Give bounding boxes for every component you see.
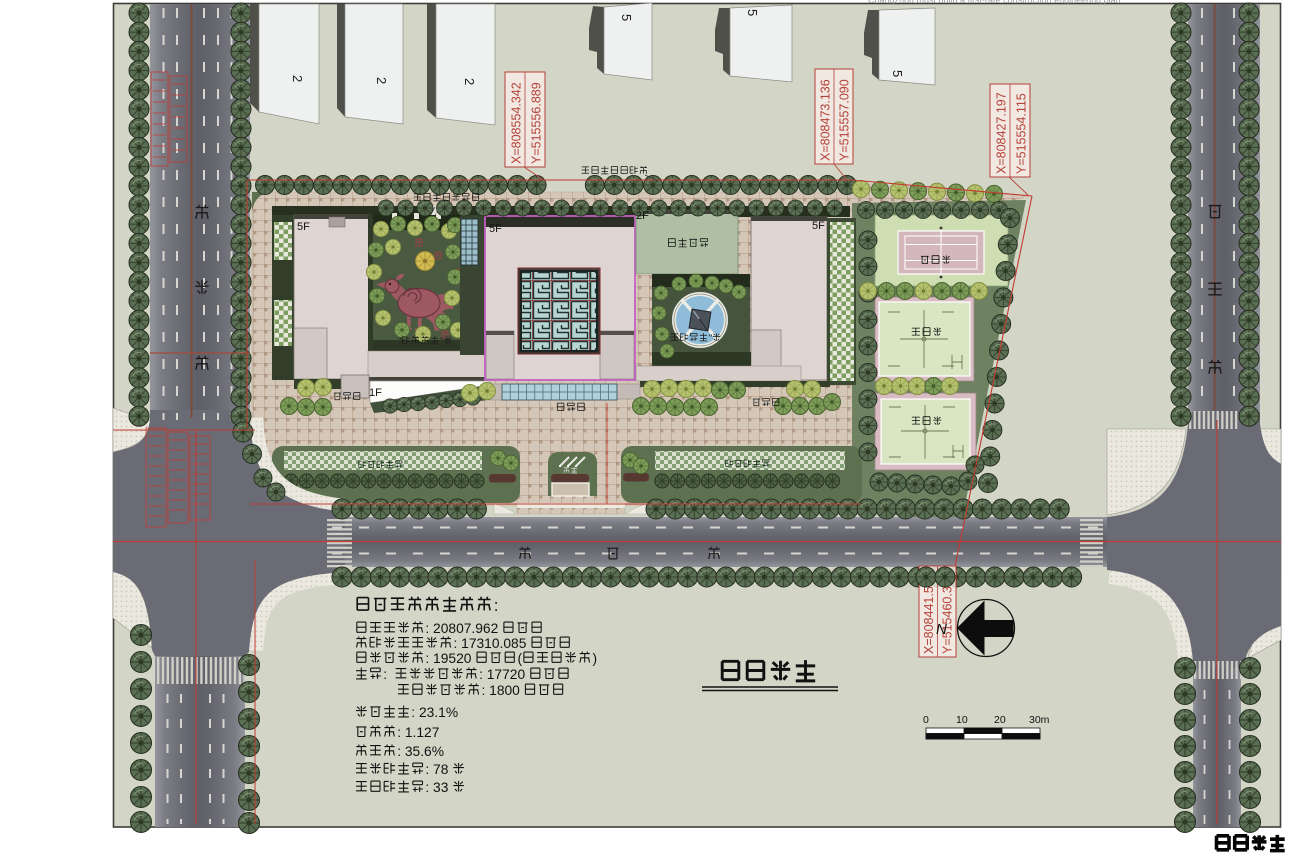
svg-text:X=808441.5: X=808441.5 [922, 586, 936, 654]
svg-text:: 19520: : 19520 [425, 651, 471, 666]
svg-text:5F: 5F [297, 221, 310, 233]
svg-text:: 17310.085: : 17310.085 [454, 636, 527, 651]
svg-text:(: ( [518, 651, 523, 666]
svg-text:Y=515557.090: Y=515557.090 [838, 79, 852, 161]
svg-text:2: 2 [462, 78, 477, 85]
svg-text:5: 5 [890, 70, 905, 77]
svg-text:: 33: : 33 [425, 780, 448, 795]
svg-text:0: 0 [923, 714, 929, 726]
svg-text:2: 2 [374, 77, 389, 84]
svg-text:Y=515556.889: Y=515556.889 [530, 82, 544, 164]
svg-text:: 78: : 78 [425, 762, 448, 777]
svg-text:5: 5 [745, 9, 760, 16]
svg-text:5: 5 [619, 14, 634, 21]
svg-text:": " [709, 333, 712, 344]
svg-text:2F: 2F [636, 210, 649, 222]
svg-text:5F: 5F [489, 223, 502, 235]
svg-text:X=808427.197: X=808427.197 [995, 92, 1009, 174]
svg-text:Y=515554.115: Y=515554.115 [1015, 93, 1029, 174]
svg-text:": " [440, 336, 443, 347]
svg-text:5F: 5F [812, 220, 825, 232]
svg-text:Changzhou must build a first-r: Changzhou must build a first-rate constr… [868, 0, 1121, 5]
svg-text:20: 20 [994, 714, 1006, 726]
svg-text:: 1.127: : 1.127 [397, 725, 439, 740]
svg-text:: 17720: : 17720 [479, 667, 525, 682]
svg-text:): ) [593, 651, 598, 666]
svg-text::: : [383, 667, 387, 682]
svg-text:2: 2 [290, 75, 305, 82]
svg-text:: 1800: : 1800 [482, 683, 521, 698]
svg-text:30m: 30m [1029, 714, 1050, 726]
svg-text:1F: 1F [369, 387, 382, 399]
svg-text:X=808473.136: X=808473.136 [819, 79, 833, 161]
svg-text:: 35.6%: : 35.6% [397, 744, 444, 759]
svg-text:N: N [936, 621, 947, 638]
svg-text:: 23.1%: : 23.1% [411, 705, 458, 720]
svg-text:": " [398, 336, 401, 347]
svg-text:10: 10 [956, 714, 968, 726]
svg-text:: 20807.962: : 20807.962 [425, 621, 498, 636]
svg-text:X=808554.342: X=808554.342 [510, 82, 524, 164]
svg-text::: : [494, 596, 499, 615]
